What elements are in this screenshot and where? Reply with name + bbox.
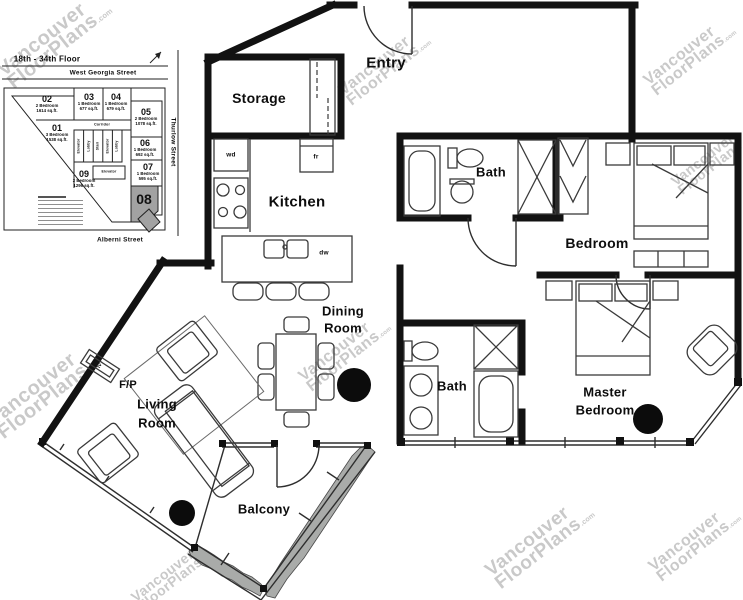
key-plan-core-cell: Stair <box>96 142 99 150</box>
pillow <box>637 146 671 165</box>
bar-stool <box>233 283 263 300</box>
master-furniture <box>546 281 741 379</box>
room-label-master: Master <box>583 385 626 400</box>
chair <box>318 343 334 369</box>
bed <box>576 281 650 375</box>
sink <box>287 240 308 258</box>
fridge-label: fr <box>313 154 318 161</box>
key-plan-unit-01: 01 3 Bedroom1538 sq.ft. <box>41 124 72 146</box>
chair <box>284 317 309 332</box>
room-label-bedroom: Bedroom <box>565 235 628 251</box>
room-label-living: Living <box>137 397 177 412</box>
chair <box>258 343 274 369</box>
chair <box>318 374 334 400</box>
pillow <box>674 146 705 165</box>
north-arrow-icon <box>150 52 161 63</box>
column <box>337 368 371 402</box>
rug <box>124 316 263 454</box>
room-label-dining: Dining <box>322 304 364 319</box>
key-plan-unit-08: 08 <box>136 191 152 207</box>
nightstand <box>546 281 572 300</box>
room-label-fireplace: F/P <box>119 379 137 391</box>
key-plan-corridor: Corridor <box>94 123 110 127</box>
key-plan-unit-07: 07 1 Bedroom595 sq.ft. <box>132 163 163 185</box>
dining-furniture <box>258 317 334 427</box>
nightstand <box>653 281 678 300</box>
pillow <box>615 284 647 301</box>
room-label-storage: Storage <box>232 90 286 106</box>
armchair <box>683 321 741 379</box>
fine-print <box>38 200 83 225</box>
room-label-living: Room <box>138 416 176 431</box>
room-label-dining: Room <box>324 321 362 336</box>
street-bottom: Alberni Street <box>97 237 143 244</box>
floor-plan-drawing <box>0 0 743 600</box>
key-plan-unit-02: 02 2 Bedroom1614 sq.ft. <box>31 95 62 117</box>
bench <box>634 251 708 267</box>
key-plan-unit-04: 04 1 Bedroom679 sq.ft. <box>100 93 131 115</box>
fine-print-heading <box>38 196 66 198</box>
key-plan-unit-09: 09 2 Bedroom1296 sq.ft. <box>68 170 99 192</box>
double-vanity <box>404 366 438 435</box>
key-plan-vestibule: Elevator <box>102 170 117 173</box>
washer-dryer-label: wd <box>226 152 236 159</box>
bar-stool <box>266 283 296 300</box>
column <box>169 500 195 526</box>
room-label-entry: Entry <box>366 55 406 72</box>
sink <box>264 240 284 258</box>
room-label-bath: Bath <box>437 379 467 394</box>
room-label-balcony: Balcony <box>238 502 290 517</box>
room-label-kitchen: Kitchen <box>269 194 326 211</box>
key-plan-core-cell: Lobby <box>87 140 90 151</box>
floor-range: 18th - 34th Floor <box>14 55 80 64</box>
nightstand <box>606 143 630 165</box>
toilet <box>448 148 457 168</box>
storage-closet <box>310 59 335 135</box>
bar-stool <box>299 283 329 300</box>
street-top: West Georgia Street <box>70 70 137 77</box>
floor-plan-canvas: Vancouver FloorPlans.com Vancouver Floor… <box>0 0 743 600</box>
armchair <box>76 422 140 485</box>
room-label-master: Bedroom <box>576 403 635 418</box>
room-label-bath: Bath <box>476 165 506 180</box>
key-plan-core-cell: Elevator <box>77 139 80 154</box>
key-plan-unit-06: 06 1 Bedroom692 sq.ft. <box>129 139 160 161</box>
dining-table <box>276 334 316 410</box>
dishwasher-label: dw <box>319 250 329 257</box>
balcony-planters <box>189 445 375 598</box>
toilet <box>404 341 412 361</box>
column <box>633 404 663 434</box>
key-plan-unit-05: 05 2 Bedroom1078 sq.ft. <box>130 108 161 130</box>
chair <box>284 412 309 427</box>
pillow <box>579 284 612 301</box>
nightstand <box>710 143 734 165</box>
street-right: Thurlow Street <box>170 117 177 166</box>
key-plan-core-cell: Lobby <box>115 140 118 151</box>
key-plan-core-cell: Elevator <box>106 139 109 154</box>
